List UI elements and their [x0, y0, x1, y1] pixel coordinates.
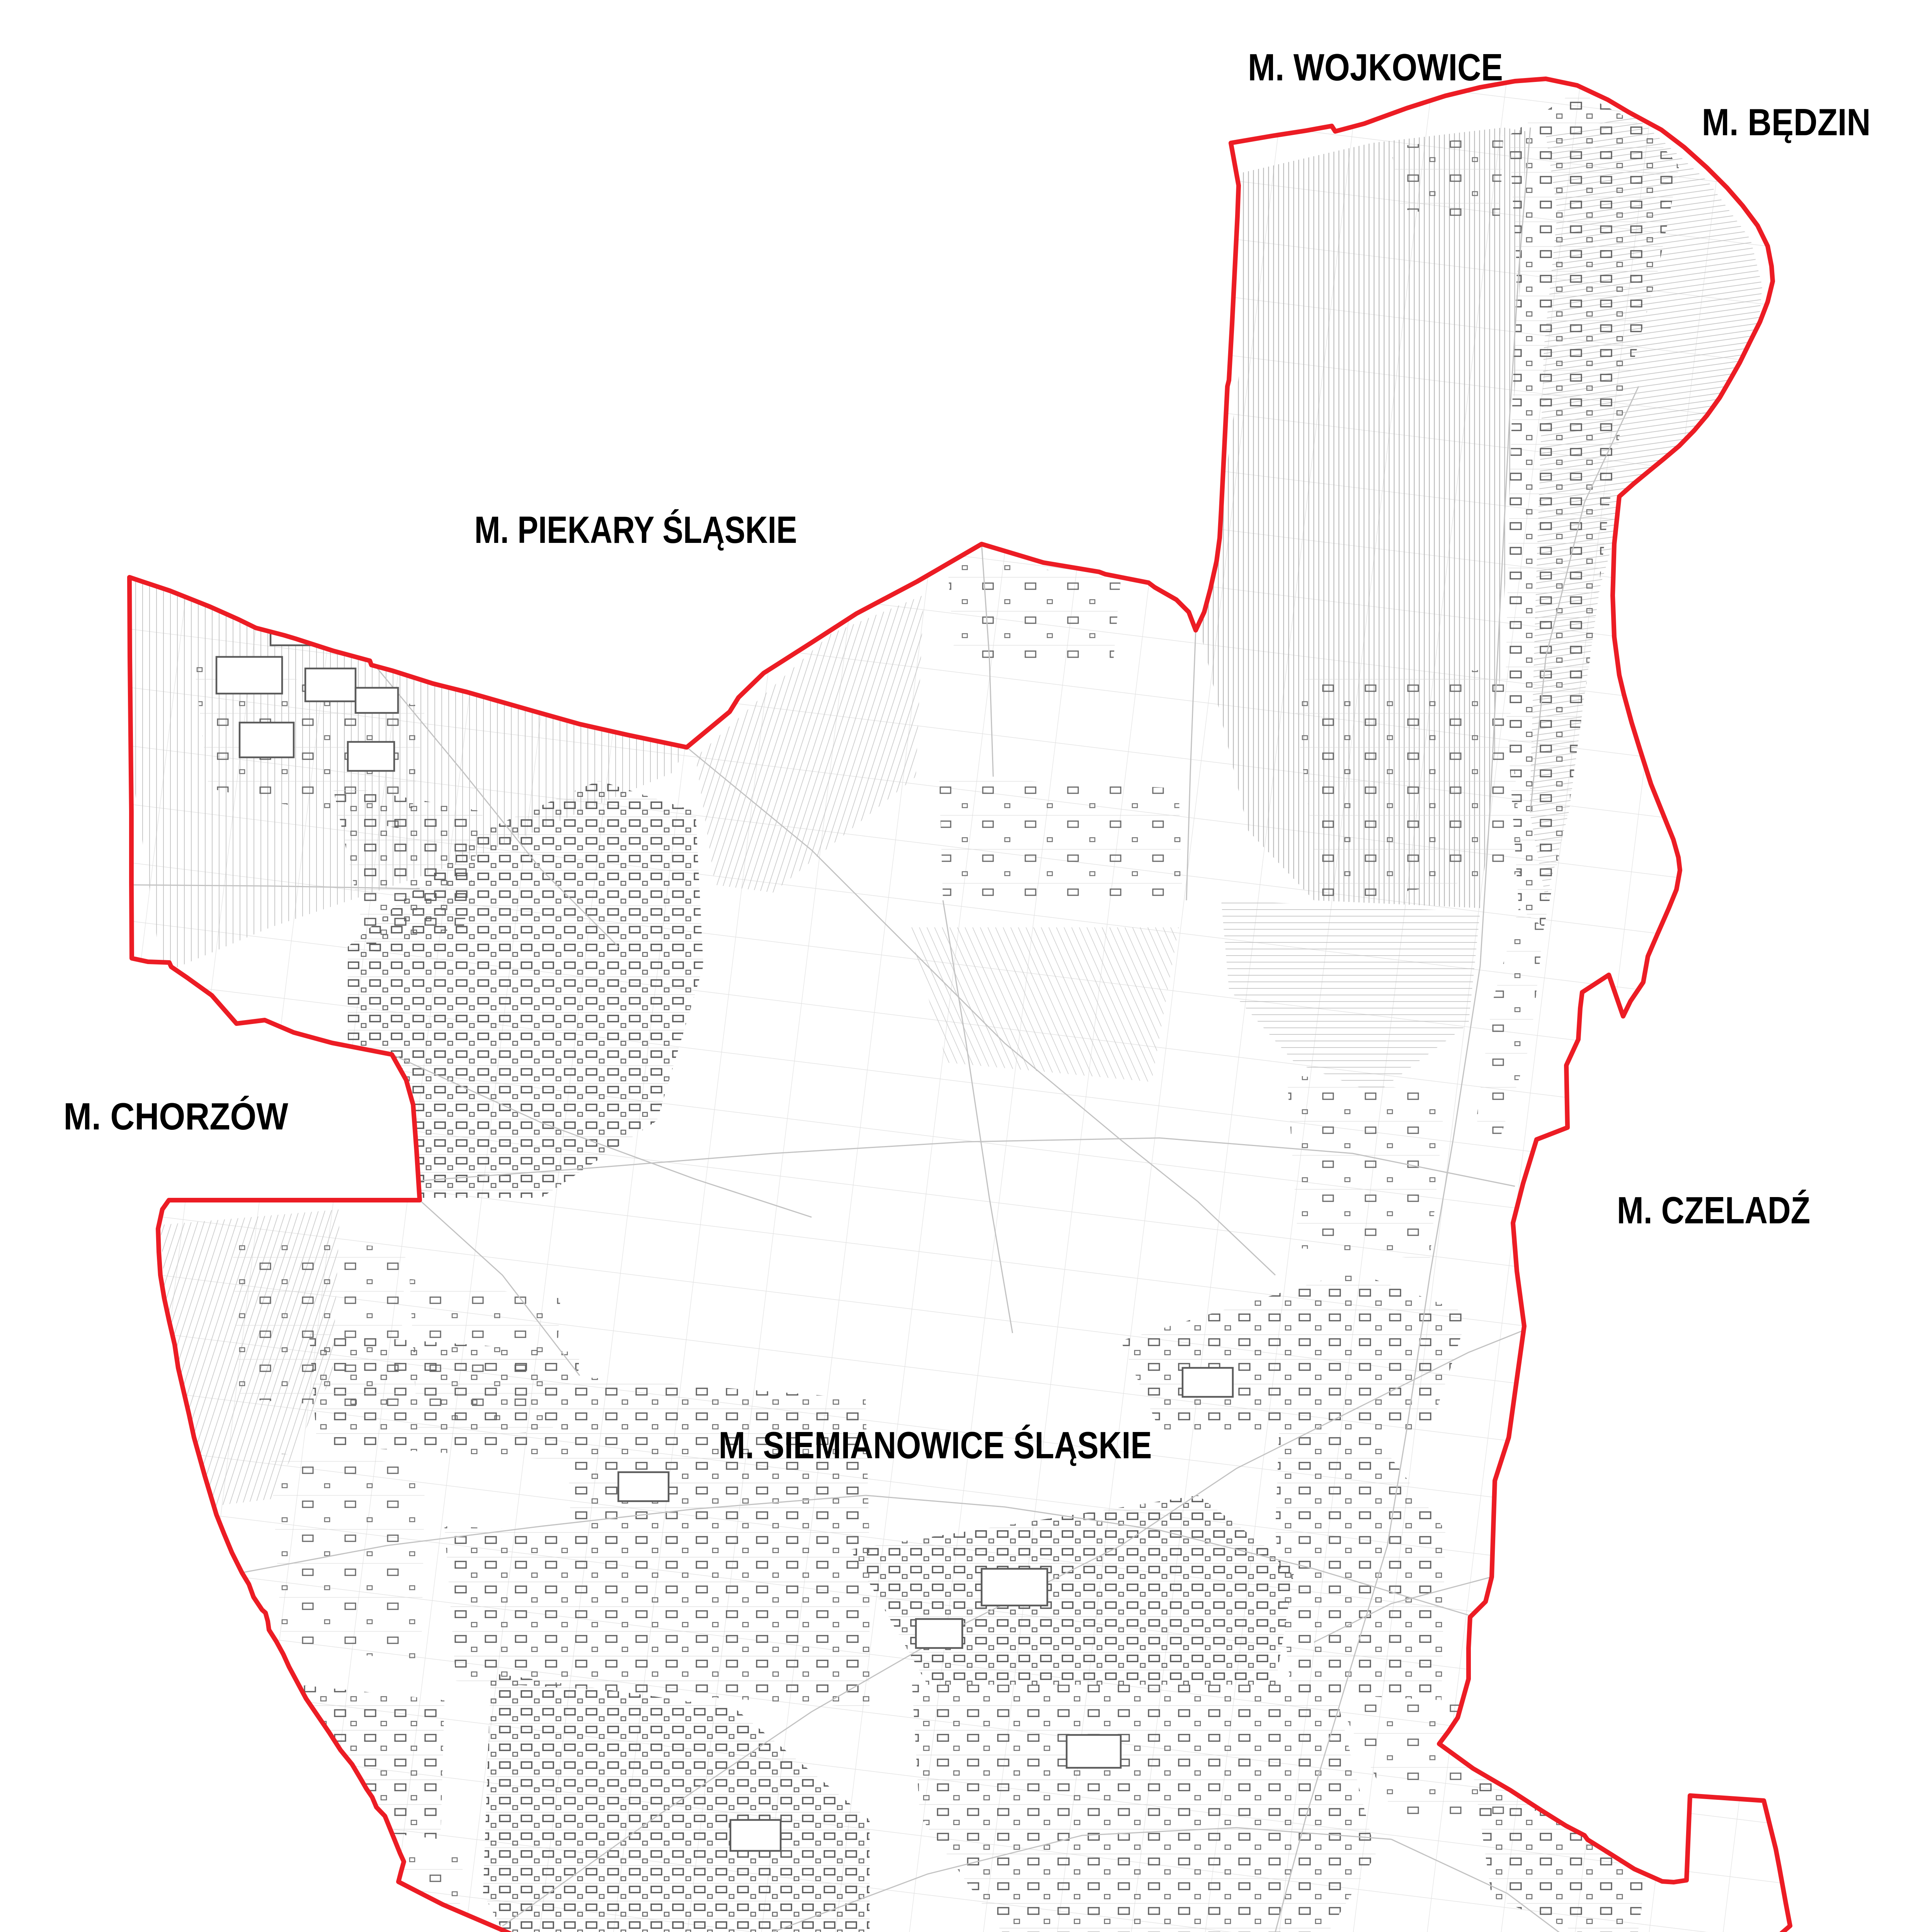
svg-text:M. CZELADŹ: M. CZELADŹ [1617, 1189, 1810, 1231]
svg-text:M. WOJKOWICE: M. WOJKOWICE [1248, 46, 1503, 88]
svg-text:M. SIEMIANOWICE ŚLĄSKIE: M. SIEMIANOWICE ŚLĄSKIE [719, 1424, 1152, 1466]
svg-text:M. PIEKARY ŚLĄSKIE: M. PIEKARY ŚLĄSKIE [475, 509, 797, 551]
svg-text:M. BĘDZIN: M. BĘDZIN [1702, 102, 1871, 144]
svg-text:M. CHORZÓW: M. CHORZÓW [63, 1095, 288, 1138]
